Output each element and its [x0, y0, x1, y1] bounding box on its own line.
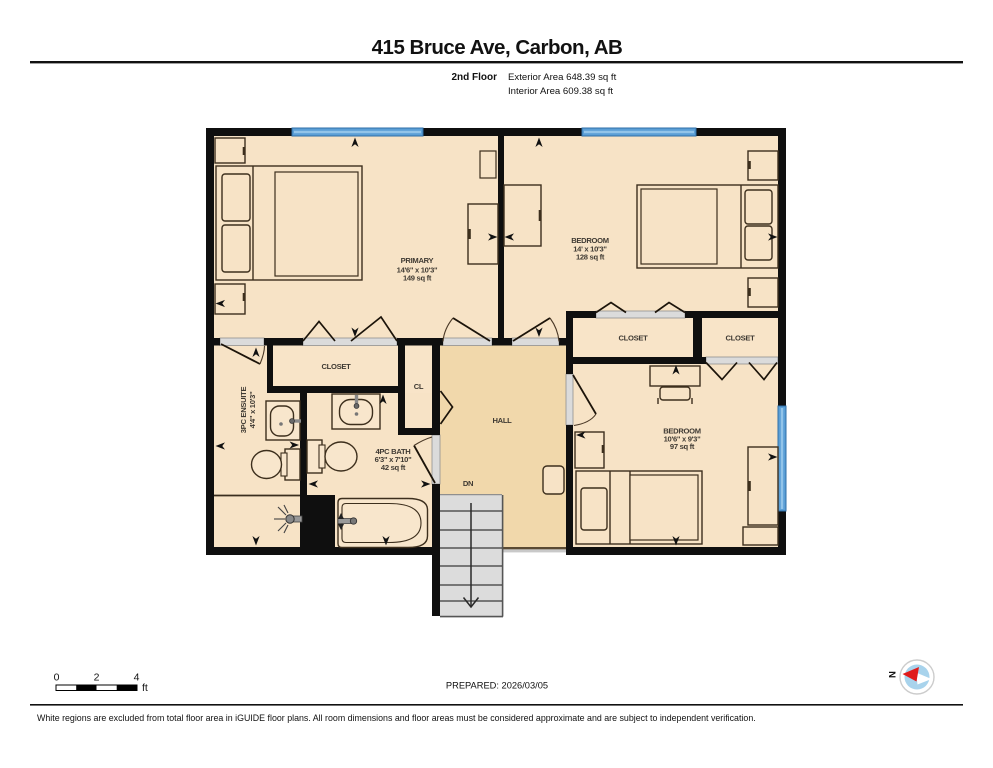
svg-text:4: 4 — [134, 672, 140, 684]
svg-text:CLOSET: CLOSET — [322, 362, 352, 371]
svg-text:N: N — [888, 671, 899, 678]
svg-text:0: 0 — [54, 672, 60, 684]
svg-text:White regions are excluded fro: White regions are excluded from total fl… — [37, 713, 756, 723]
svg-text:97 sq ft: 97 sq ft — [670, 442, 695, 451]
svg-text:PRIMARY: PRIMARY — [401, 256, 434, 265]
svg-text:CLOSET: CLOSET — [726, 334, 756, 343]
svg-text:128 sq ft: 128 sq ft — [576, 253, 605, 262]
svg-text:4'4" x 10'3": 4'4" x 10'3" — [248, 391, 257, 428]
svg-text:415 Bruce Ave, Carbon, AB: 415 Bruce Ave, Carbon, AB — [372, 36, 623, 59]
svg-text:3PC ENSUITE: 3PC ENSUITE — [239, 387, 248, 434]
svg-text:2: 2 — [94, 672, 100, 684]
svg-text:Interior Area 609.38 sq ft: Interior Area 609.38 sq ft — [508, 86, 613, 97]
svg-text:PREPARED: 2026/03/05: PREPARED: 2026/03/05 — [446, 681, 548, 691]
svg-text:2nd Floor: 2nd Floor — [451, 72, 497, 83]
svg-text:Exterior Area 648.39 sq ft: Exterior Area 648.39 sq ft — [508, 72, 617, 83]
svg-text:ft: ft — [142, 682, 148, 694]
svg-text:42 sq ft: 42 sq ft — [381, 463, 406, 472]
svg-text:CL: CL — [414, 382, 424, 391]
svg-text:CLOSET: CLOSET — [619, 334, 649, 343]
svg-text:HALL: HALL — [492, 416, 512, 425]
svg-text:149 sq ft: 149 sq ft — [403, 274, 432, 283]
svg-text:DN: DN — [463, 479, 473, 488]
